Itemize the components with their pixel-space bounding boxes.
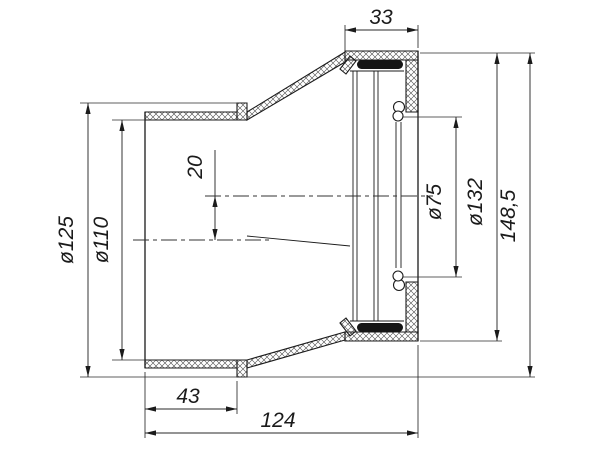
socket-wall-bottom bbox=[345, 332, 418, 341]
flange-rib-top bbox=[237, 103, 247, 120]
technical-drawing-canvas: 33 ø125 ø110 20 ø75 ø132 148,5 43 124 bbox=[0, 0, 600, 450]
cone-wall-bottom bbox=[247, 332, 345, 368]
spigot-wall-top bbox=[145, 112, 237, 120]
dimension-lines bbox=[88, 30, 530, 433]
seal-bottom bbox=[357, 323, 403, 332]
socket-wall-top bbox=[345, 51, 418, 60]
outlet-bead-top-inner bbox=[393, 111, 403, 121]
spigot-wall-bottom bbox=[145, 360, 237, 368]
dim-label-socket-depth: 33 bbox=[369, 6, 393, 29]
dim-label-axis-offset: 20 bbox=[184, 155, 207, 180]
seal-top bbox=[357, 60, 403, 69]
cone-wall-top bbox=[247, 52, 345, 120]
dimension-labels: 33 ø125 ø110 20 ø75 ø132 148,5 43 124 bbox=[55, 6, 520, 432]
dim-label-socket-outer-diameter: ø132 bbox=[464, 178, 487, 226]
extension-lines bbox=[80, 25, 535, 438]
dim-label-outlet-diameter: ø75 bbox=[423, 184, 446, 221]
end-wall-top bbox=[406, 60, 418, 112]
outlet-bead-bottom-inner bbox=[393, 271, 403, 281]
dim-label-overall-length: 124 bbox=[260, 409, 295, 432]
dim-label-flange-diameter: ø125 bbox=[55, 216, 78, 264]
centerlines bbox=[133, 196, 433, 240]
eccentric-reducer-section-drawing: 33 ø125 ø110 20 ø75 ø132 148,5 43 124 bbox=[0, 0, 600, 450]
end-wall-bottom bbox=[406, 282, 418, 332]
flange-rib-bottom bbox=[237, 360, 247, 377]
dim-label-overall-height: 148,5 bbox=[497, 189, 520, 242]
cone-inner-edge bbox=[247, 236, 350, 246]
outlet-bore-lines bbox=[396, 122, 401, 268]
dim-label-spigot-diameter: ø110 bbox=[90, 217, 113, 264]
dim-label-spigot-length: 43 bbox=[176, 385, 200, 408]
